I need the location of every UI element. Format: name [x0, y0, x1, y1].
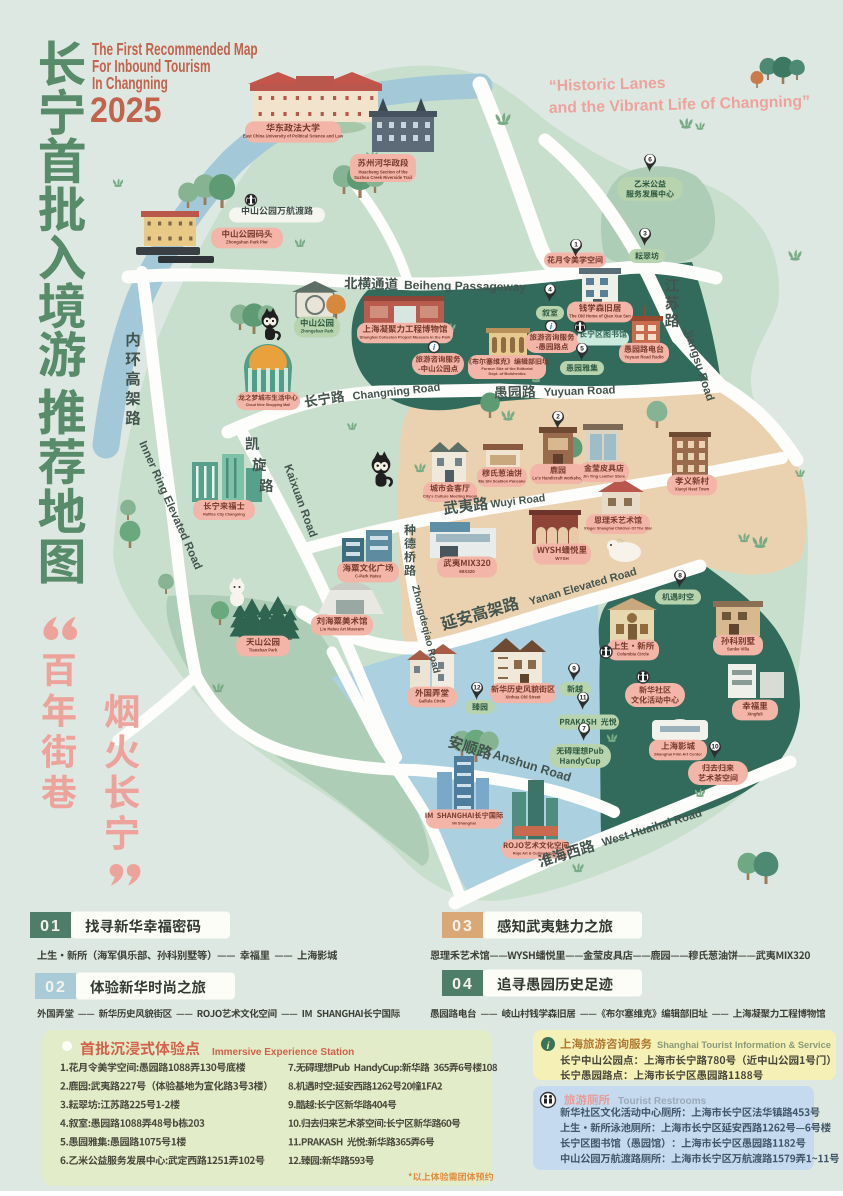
svg-text:MIX320: MIX320: [459, 569, 475, 574]
svg-text:4: 4: [548, 286, 552, 293]
svg-text:01: 01: [40, 918, 62, 935]
svg-text:Yuyuan Road: Yuyuan Road: [544, 384, 616, 398]
svg-text:Dept. of Bolsheviks: Dept. of Bolsheviks: [488, 371, 526, 376]
svg-text:Tianshan Park: Tianshan Park: [249, 648, 278, 653]
svg-text:3: 3: [643, 230, 647, 237]
svg-text:Zhongshan Park: Zhongshan Park: [301, 329, 334, 334]
svg-text:10: 10: [711, 743, 719, 750]
svg-text:5: 5: [580, 345, 584, 352]
svg-text:1: 1: [574, 241, 578, 248]
svg-text:C-Park Haisu: C-Park Haisu: [355, 574, 382, 579]
svg-text:Gallula Circle: Gallula Circle: [419, 699, 446, 704]
svg-text:Raffles City Changning: Raffles City Changning: [203, 512, 245, 516]
svg-text:Tourist Restrooms: Tourist Restrooms: [618, 1096, 707, 1107]
svg-text:Yuyuan Road Radio: Yuyuan Road Radio: [624, 355, 664, 360]
svg-text:8: 8: [678, 572, 682, 579]
svg-text:03: 03: [452, 918, 474, 935]
svg-text:Beiheng Passageway: Beiheng Passageway: [404, 278, 527, 294]
svg-text:Suzhou Creek Riverside Trail: Suzhou Creek Riverside Trail: [354, 175, 412, 180]
svg-text:Zhongshan Park Pier: Zhongshan Park Pier: [226, 240, 268, 245]
svg-text:Liu Haisu Art Museum: Liu Haisu Art Museum: [320, 627, 364, 632]
svg-text:Xiaoyi Nest Town: Xiaoyi Nest Town: [675, 487, 710, 492]
svg-text:City's Culture Meeting Room: City's Culture Meeting Room: [423, 494, 478, 499]
svg-text:7: 7: [582, 725, 586, 732]
svg-text:Shanghai Tourist Information &: Shanghai Tourist Information & Service: [657, 1040, 831, 1050]
svg-text:Xinhua Old Street: Xinhua Old Street: [505, 695, 541, 700]
svg-text:Xinger Shanghai Children Of Th: Xinger Shanghai Children Of The Star: [584, 526, 652, 530]
svg-text:Shanghai Film Art Center: Shanghai Film Art Center: [654, 752, 702, 757]
svg-text:The Old Home of Qian Xue Sen: The Old Home of Qian Xue Sen: [569, 314, 631, 319]
svg-text:Xingfuli: Xingfuli: [747, 712, 762, 717]
svg-text:9: 9: [572, 665, 576, 672]
svg-text:Columbia Circle: Columbia Circle: [617, 652, 650, 657]
svg-text:Sunke Villa: Sunke Villa: [727, 647, 750, 652]
svg-text:Huacheng Section of the: Huacheng Section of the: [358, 170, 408, 175]
svg-text:12: 12: [473, 684, 481, 691]
svg-text:04: 04: [452, 976, 474, 993]
svg-text:Cloud Nine Shopping Mall: Cloud Nine Shopping Mall: [246, 403, 291, 407]
svg-text:11: 11: [580, 694, 587, 701]
svg-text:6: 6: [648, 156, 652, 163]
svg-text:WYSH: WYSH: [555, 556, 569, 561]
svg-text:“Historic Lanes: “Historic Lanes: [549, 75, 666, 95]
svg-text:In Changning: In Changning: [92, 74, 168, 94]
svg-text:02: 02: [45, 979, 67, 996]
svg-text:i: i: [547, 1041, 550, 1052]
svg-text:2025: 2025: [90, 92, 162, 131]
svg-text:Mu Shi Scallion Pancake: Mu Shi Scallion Pancake: [479, 479, 527, 484]
svg-text:Lu's Handicraft workshop: Lu's Handicraft workshop: [532, 476, 584, 481]
svg-text:East China University of Polit: East China University of Political Scien…: [243, 134, 344, 139]
svg-text:IM Shanghai: IM Shanghai: [452, 821, 476, 826]
svg-text:Jin Ying Leather Store: Jin Ying Leather Store: [583, 474, 626, 479]
svg-text:2: 2: [556, 413, 560, 420]
svg-text:Shanghai Cohesion Project Muse: Shanghai Cohesion Project Museum in the …: [360, 335, 452, 340]
svg-text:Immersive Experience Station: Immersive Experience Station: [212, 1047, 354, 1058]
